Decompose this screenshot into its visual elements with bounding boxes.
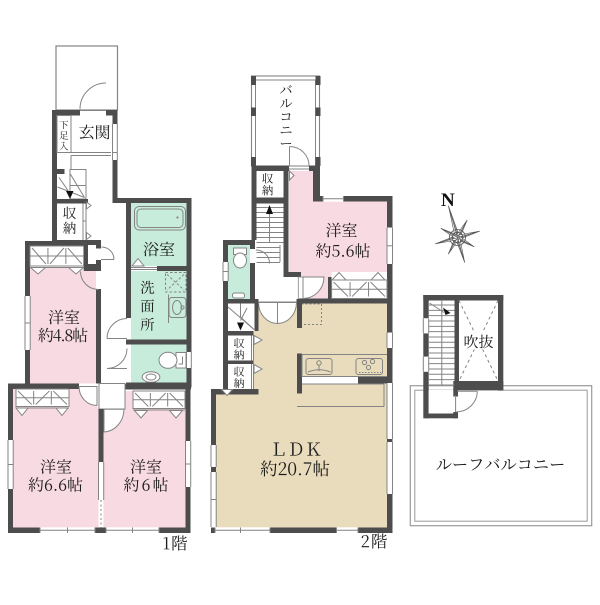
svg-text:N: N bbox=[441, 190, 455, 211]
